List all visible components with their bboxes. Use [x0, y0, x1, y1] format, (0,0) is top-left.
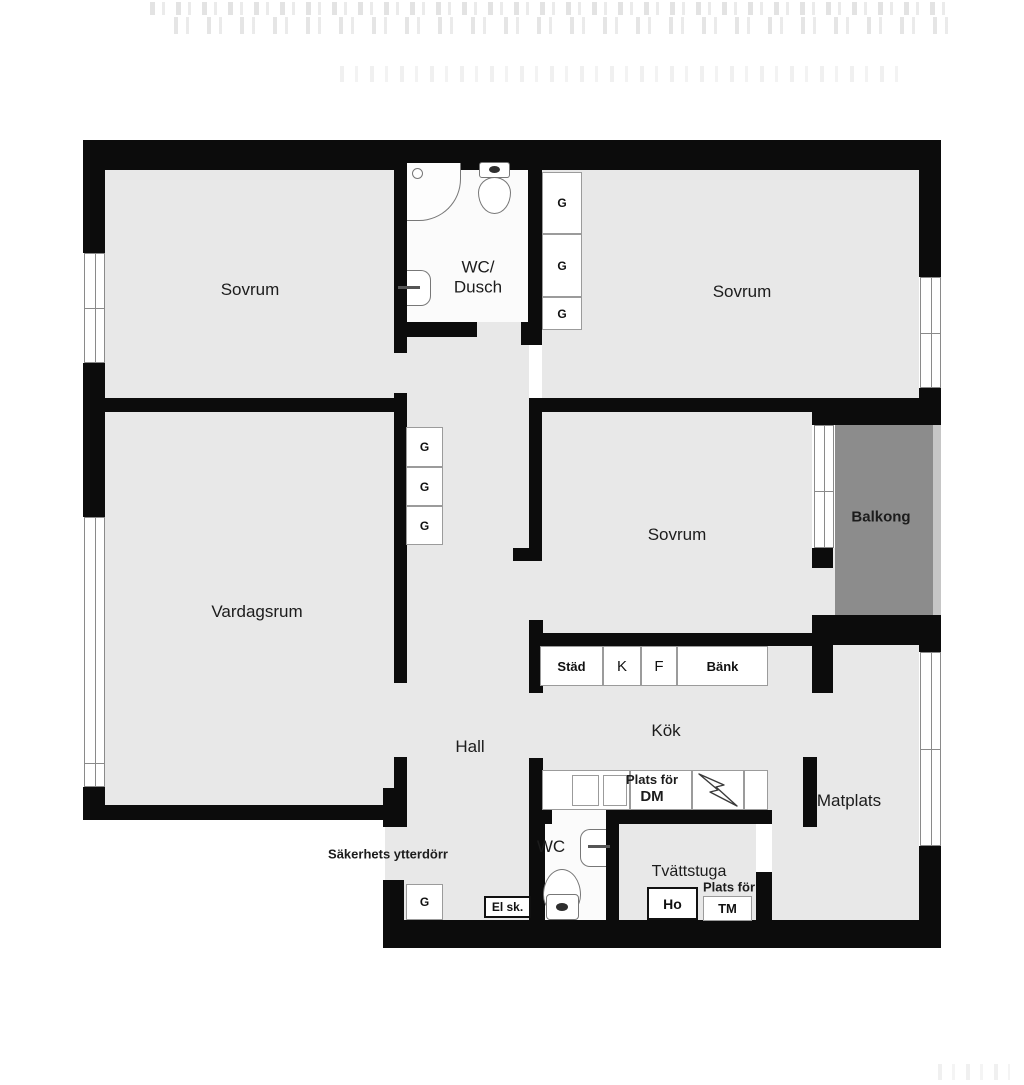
- cabinet-label: K: [617, 658, 627, 675]
- closet-label: G: [420, 480, 429, 494]
- wall-counter-stub: [529, 758, 543, 812]
- wall-outer-right-4: [919, 846, 941, 948]
- cropped-artifact-row-3: [340, 66, 910, 82]
- label-vardagsrum: Vardagsrum: [211, 602, 302, 622]
- wall-outer-right-1: [919, 140, 941, 277]
- cropped-artifact-bottom: [938, 1064, 1010, 1080]
- closet-label: G: [557, 196, 566, 210]
- label-wc-dusch-line2: Dusch: [454, 277, 502, 297]
- faucet-wc-dusch-icon: [398, 286, 420, 289]
- wall-sovrum3-door-jamb: [513, 548, 538, 561]
- closet-label: G: [420, 519, 429, 533]
- wall-balkong-matplats-stub: [812, 615, 833, 693]
- window-sovrum-top-left: [84, 253, 105, 363]
- closet-sovrum2-2: G: [542, 234, 582, 297]
- wall-balkong-door-jamb: [812, 548, 833, 568]
- wall-kok-north: [529, 633, 813, 646]
- label-kok: Kök: [651, 721, 680, 741]
- label-sovrum-middle: Sovrum: [648, 525, 707, 545]
- wall-vardagsrum-bottom: [83, 805, 407, 820]
- wall-outer-bottom: [385, 920, 941, 948]
- label-tvattstuga: Tvättstuga: [652, 863, 727, 881]
- label-wc-dusch-line1: WC/: [454, 257, 502, 277]
- wall-kok-south-left: [529, 810, 552, 824]
- label-sovrum-top-right: Sovrum: [713, 282, 772, 302]
- label-plats-for-dm: Plats för DM: [626, 773, 678, 805]
- tm-label: TM: [718, 901, 737, 916]
- closet-label: G: [557, 307, 566, 321]
- label-plats-for-tm: Plats för: [703, 881, 755, 896]
- kitchen-cabinet-stad: Städ: [540, 646, 603, 686]
- closet-hall-1: G: [406, 427, 443, 467]
- cropped-artifact-row-2: [165, 17, 955, 34]
- wall-outer-top: [83, 140, 941, 170]
- wall-outer-right-3: [919, 645, 941, 652]
- toilet-button-icon: [489, 166, 500, 173]
- kitchen-sink-basin-1: [572, 775, 599, 806]
- label-matplats: Matplats: [817, 791, 881, 811]
- wall-wcdusch-bottom: [394, 322, 477, 337]
- closet-label: G: [557, 259, 566, 273]
- cabinet-label: Städ: [557, 659, 585, 674]
- window-balkong-door: [814, 425, 834, 548]
- wall-hall-left-lower: [394, 757, 407, 820]
- ho-label: Ho: [663, 896, 682, 912]
- closet-sovrum2-3: G: [542, 297, 582, 330]
- label-dm-line1: Plats för: [626, 773, 678, 788]
- wall-kok-matplats: [803, 757, 817, 827]
- wall-wc-tvattstuga: [606, 810, 619, 920]
- sink-wc: [580, 829, 606, 867]
- wall-kok-south-right: [606, 810, 772, 824]
- room-matplats: [772, 645, 919, 920]
- kitchen-cabinet-k: K: [603, 646, 641, 686]
- label-wc-dusch: WC/ Dusch: [454, 257, 502, 296]
- window-matplats: [920, 652, 941, 846]
- closet-label: G: [420, 895, 429, 909]
- wall-wc-left: [529, 812, 545, 920]
- washing-machine-cell: TM: [703, 896, 752, 921]
- kitchen-cabinet-f: F: [641, 646, 677, 686]
- kitchen-counter-end-cell: [744, 770, 768, 810]
- kitchen-sink-basin-2: [603, 775, 627, 806]
- closet-sovrum2-1: G: [542, 172, 582, 234]
- label-entrance-door: Säkerhets ytterdörr: [328, 848, 448, 863]
- room-sovrum-middle: [542, 412, 812, 633]
- wall-wcdusch-sovrum2: [528, 140, 542, 323]
- wall-sovrum2-door-jamb: [521, 322, 542, 345]
- shower-drain-icon: [412, 168, 423, 179]
- label-sovrum-top-left: Sovrum: [221, 280, 280, 300]
- laundry-sink-ho: Ho: [647, 887, 698, 920]
- label-hall: Hall: [455, 737, 484, 757]
- electrical-cabinet-box: El sk.: [484, 896, 531, 918]
- wall-sovrum1-vardagsrum: [83, 398, 407, 412]
- floor-plan: G G G G G G G Städ K F Bänk Ho TM El sk.: [0, 0, 1024, 1085]
- balcony-railing: [933, 425, 941, 620]
- wall-hall-sovrum3: [529, 398, 542, 561]
- closet-label: G: [420, 440, 429, 454]
- closet-hall-3: G: [406, 506, 443, 545]
- closet-entrance: G: [406, 884, 443, 920]
- label-balkong: Balkong: [851, 508, 910, 525]
- cropped-artifact-row-1: [150, 2, 950, 15]
- stove-icon: [696, 772, 740, 809]
- el-sk-label: El sk.: [492, 900, 523, 914]
- wall-tvattstuga-right: [756, 872, 772, 920]
- label-wc: WC: [537, 837, 565, 857]
- cabinet-label: F: [654, 658, 663, 675]
- toilet-button-wc-icon: [556, 903, 568, 911]
- wall-balkong-top: [812, 410, 941, 425]
- window-vardagsrum: [84, 517, 105, 787]
- wall-sovrum2-sovrum3: [530, 398, 941, 412]
- label-dm-line2: DM: [626, 788, 678, 805]
- cabinet-label: Bänk: [707, 659, 739, 674]
- window-sovrum-top-right: [920, 277, 941, 388]
- kitchen-cabinet-bank: Bänk: [677, 646, 768, 686]
- wall-outer-left-1: [83, 140, 105, 253]
- wall-outer-left-2: [83, 363, 105, 517]
- faucet-wc-icon: [588, 845, 610, 848]
- closet-hall-2: G: [406, 467, 443, 506]
